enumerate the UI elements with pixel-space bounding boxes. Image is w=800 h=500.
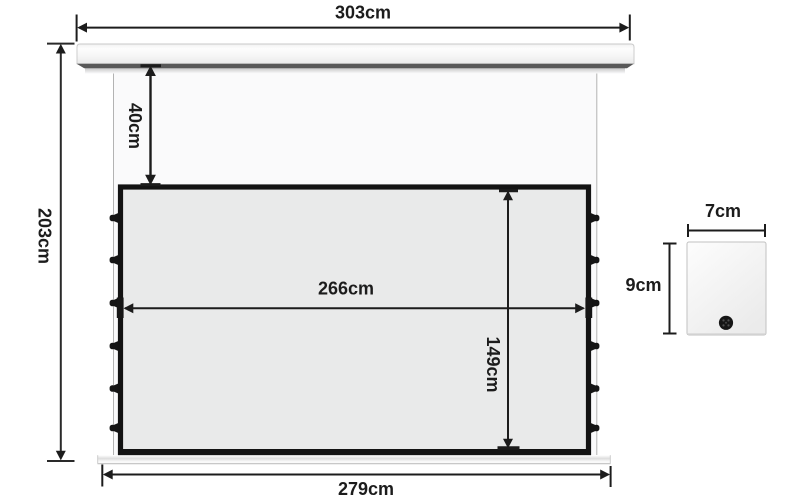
svg-text:40cm: 40cm xyxy=(125,103,145,149)
svg-text:149cm: 149cm xyxy=(483,336,503,392)
svg-text:203cm: 203cm xyxy=(35,208,55,264)
svg-text:279cm: 279cm xyxy=(338,479,394,499)
svg-text:9cm: 9cm xyxy=(625,275,661,295)
svg-text:7cm: 7cm xyxy=(705,201,741,221)
svg-text:266cm: 266cm xyxy=(318,279,374,299)
svg-text:303cm: 303cm xyxy=(335,3,391,23)
